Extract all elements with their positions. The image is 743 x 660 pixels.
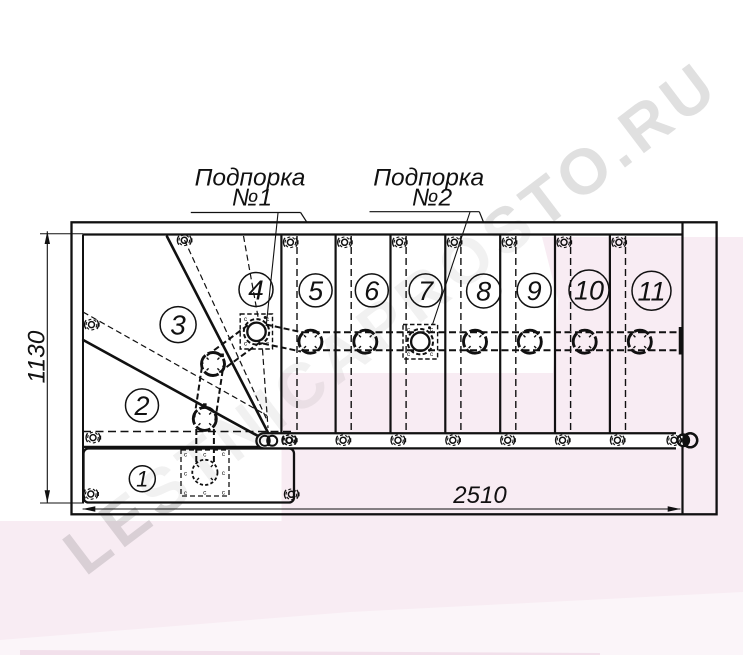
- svg-text:9: 9: [527, 276, 542, 306]
- svg-text:1130: 1130: [24, 330, 51, 383]
- svg-text:3: 3: [170, 310, 186, 341]
- svg-text:№1: №1: [232, 184, 272, 211]
- svg-text:№2: №2: [412, 184, 453, 211]
- svg-text:2: 2: [133, 391, 149, 421]
- svg-text:5: 5: [308, 276, 324, 306]
- svg-text:4: 4: [248, 274, 264, 305]
